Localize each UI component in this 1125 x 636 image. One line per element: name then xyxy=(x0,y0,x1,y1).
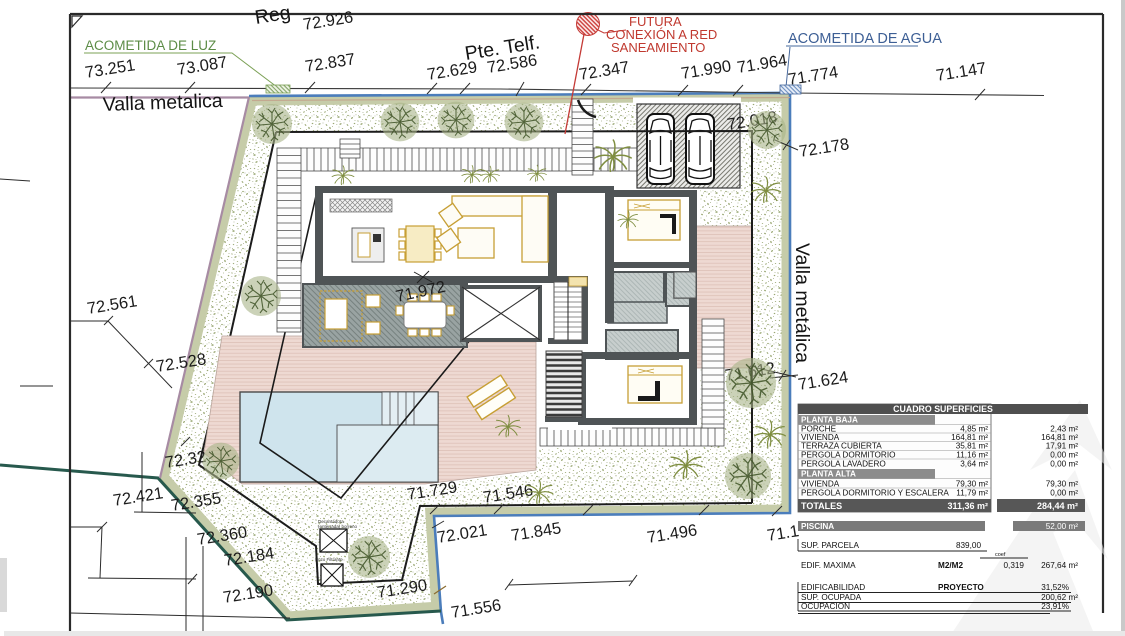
svg-text:267,64 m²: 267,64 m² xyxy=(1041,561,1078,570)
svg-text:3,64 m²: 3,64 m² xyxy=(960,460,988,469)
svg-text:EDIFICABILIDAD: EDIFICABILIDAD xyxy=(801,583,865,592)
svg-text:VIVIENDA: VIVIENDA xyxy=(801,480,840,489)
svg-text:31,52%: 31,52% xyxy=(1041,583,1069,592)
svg-text:TOTALES: TOTALES xyxy=(801,501,842,511)
svg-text:0,00 m²: 0,00 m² xyxy=(1050,489,1078,498)
svg-text:52,00 m²: 52,00 m² xyxy=(1046,522,1079,531)
svg-text:ACOMETIDA DE AGUA: ACOMETIDA DE AGUA xyxy=(788,31,942,47)
svg-text:SUP. PARCELA: SUP. PARCELA xyxy=(801,541,859,550)
svg-text:PLANTA ALTA: PLANTA ALTA xyxy=(801,470,856,479)
svg-text:79,30 m²: 79,30 m² xyxy=(1046,480,1079,489)
svg-text:PROYECTO: PROYECTO xyxy=(938,583,984,592)
svg-text:0,00 m²: 0,00 m² xyxy=(1050,460,1078,469)
svg-text:311,36 m²: 311,36 m² xyxy=(947,501,988,511)
svg-text:79,30 m²: 79,30 m² xyxy=(956,480,989,489)
svg-text:ACOMETIDA DE LUZ: ACOMETIDA DE LUZ xyxy=(85,38,216,53)
svg-text:TERRAZA CUBIERTA: TERRAZA CUBIERTA xyxy=(801,442,882,451)
svg-text:35,81 m²: 35,81 m² xyxy=(956,442,989,451)
svg-text:CUADRO SUPERFICIES: CUADRO SUPERFICIES xyxy=(893,404,993,414)
svg-text:0,00 m²: 0,00 m² xyxy=(1050,451,1078,460)
svg-text:(enterrada) horreno: (enterrada) horreno xyxy=(318,524,358,529)
svg-text:Pozo Filtrante: Pozo Filtrante xyxy=(315,557,343,562)
svg-text:11,16 m²: 11,16 m² xyxy=(956,451,988,460)
svg-text:Valla metálica: Valla metálica xyxy=(791,243,813,363)
svg-text:PERGOLA DORMITORIO: PERGOLA DORMITORIO xyxy=(801,451,895,460)
svg-text:PERGOLA LAVADERO: PERGOLA LAVADERO xyxy=(801,460,886,469)
svg-text:M2/M2: M2/M2 xyxy=(938,561,963,570)
svg-text:17,91 m²: 17,91 m² xyxy=(1046,442,1079,451)
svg-text:PLANTA BAJA: PLANTA BAJA xyxy=(801,416,858,425)
svg-text:SUP. OCUPADA: SUP. OCUPADA xyxy=(801,593,862,602)
svg-text:11,79 m²: 11,79 m² xyxy=(956,489,988,498)
svg-text:839,00: 839,00 xyxy=(956,541,981,550)
svg-text:PISCINA: PISCINA xyxy=(801,522,834,531)
svg-text:23,91%: 23,91% xyxy=(1041,602,1069,611)
svg-text:EDIF. MAXIMA: EDIF. MAXIMA xyxy=(801,561,856,570)
svg-text:PERGOLA DORMITORIO Y ESCALERA: PERGOLA DORMITORIO Y ESCALERA xyxy=(801,489,949,498)
svg-text:Valla metalica: Valla metalica xyxy=(102,90,223,116)
svg-text:0,319: 0,319 xyxy=(1004,561,1025,570)
svg-text:OCUPACION: OCUPACION xyxy=(801,602,850,611)
svg-text:coef: coef xyxy=(995,552,1006,558)
svg-text:SANEAMIENTO: SANEAMIENTO xyxy=(611,40,705,55)
svg-text:284,44 m²: 284,44 m² xyxy=(1037,501,1078,511)
svg-text:200,62 m²: 200,62 m² xyxy=(1041,593,1078,602)
